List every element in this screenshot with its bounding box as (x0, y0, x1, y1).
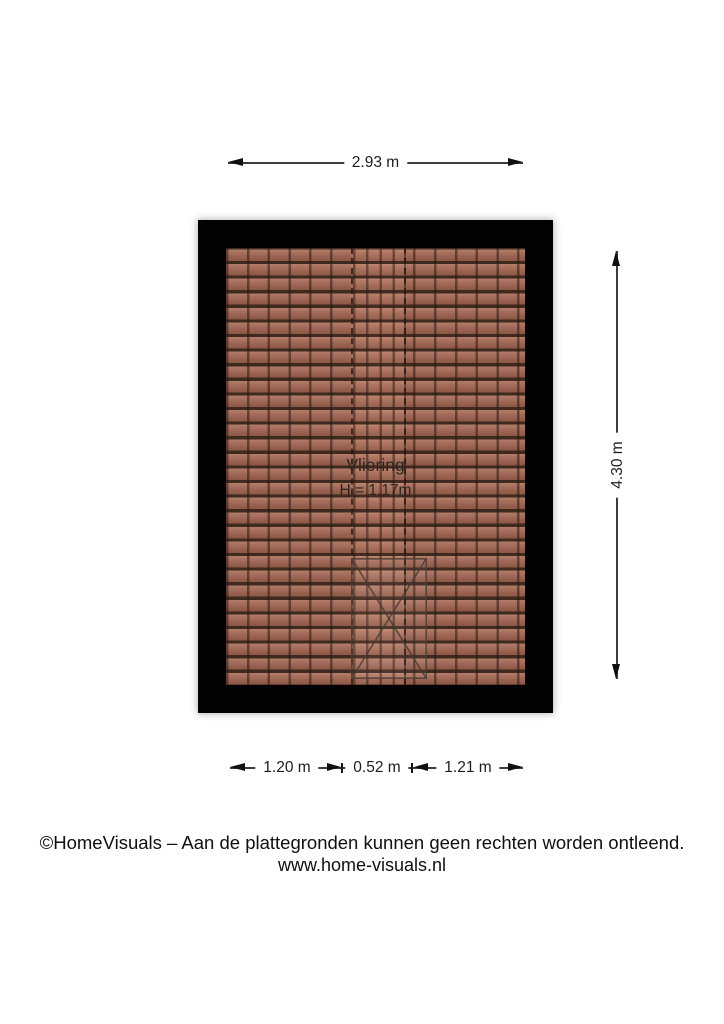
hatch-cross-icon (351, 558, 427, 679)
dimension-bottom-widths: 1.20 m 0.52 m 1.21 m (230, 756, 523, 780)
footer-copyright: ©HomeVisuals – Aan de plattegronden kunn… (0, 831, 724, 854)
footer-website: www.home-visuals.nl (0, 854, 724, 877)
arrowhead-right-icon (508, 158, 523, 166)
arrowhead-up-icon (612, 251, 620, 266)
dimension-right-height: 4.30 m (605, 251, 630, 679)
dimension-label-segment-1: 1.20 m (255, 759, 318, 777)
stair-hatch-area (351, 558, 427, 679)
dimension-label-segment-2: 0.52 m (345, 759, 408, 777)
dimension-top-width: 2.93 m (228, 151, 523, 175)
room-name: Vliering (226, 455, 525, 475)
dimension-label-height: 4.30 m (609, 432, 627, 497)
room-height-label: H = 1.17m (226, 482, 525, 500)
arrowhead-right-icon (327, 763, 341, 771)
arrowhead-down-icon (612, 664, 620, 679)
arrowhead-right-icon (508, 763, 523, 771)
dimension-label-segment-3: 1.21 m (436, 759, 499, 777)
footer: ©HomeVisuals – Aan de plattegronden kunn… (0, 831, 724, 877)
arrowhead-left-icon (230, 763, 245, 771)
dimension-tick (341, 763, 343, 773)
dimension-label-width: 2.93 m (344, 154, 407, 172)
arrowhead-left-icon (228, 158, 243, 166)
room-label: Vliering H = 1.17m (226, 455, 525, 500)
arrowhead-left-icon (414, 763, 428, 771)
dimension-tick (411, 763, 413, 773)
